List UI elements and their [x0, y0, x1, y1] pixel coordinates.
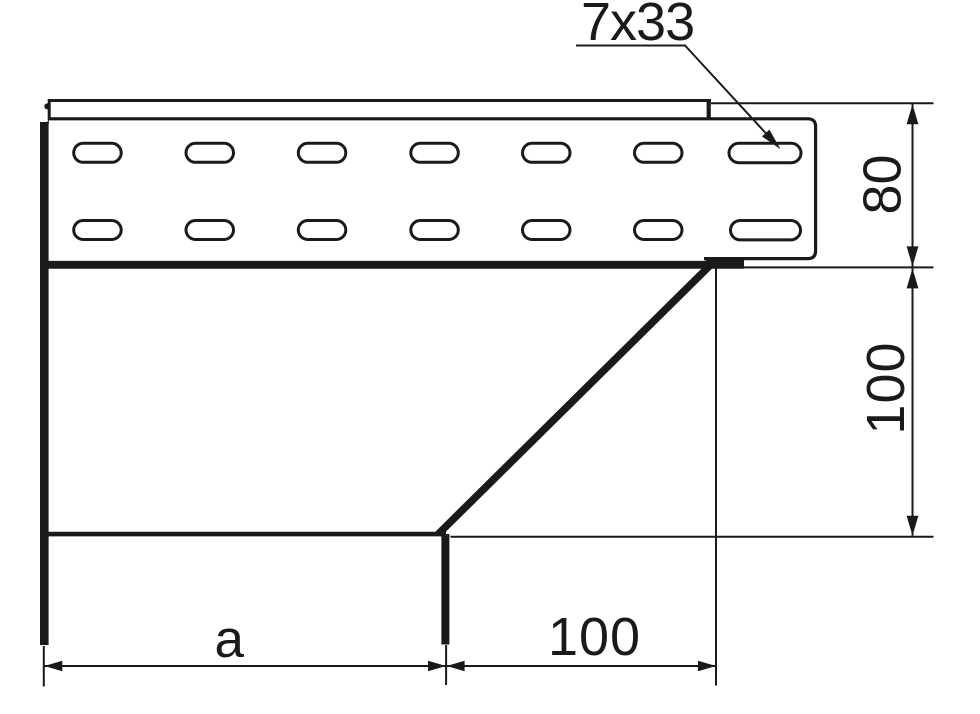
- svg-text:a: a: [215, 610, 245, 669]
- svg-text:80: 80: [853, 154, 913, 214]
- svg-text:7x33: 7x33: [581, 0, 694, 52]
- svg-text:100: 100: [856, 341, 916, 434]
- svg-text:100: 100: [548, 607, 641, 667]
